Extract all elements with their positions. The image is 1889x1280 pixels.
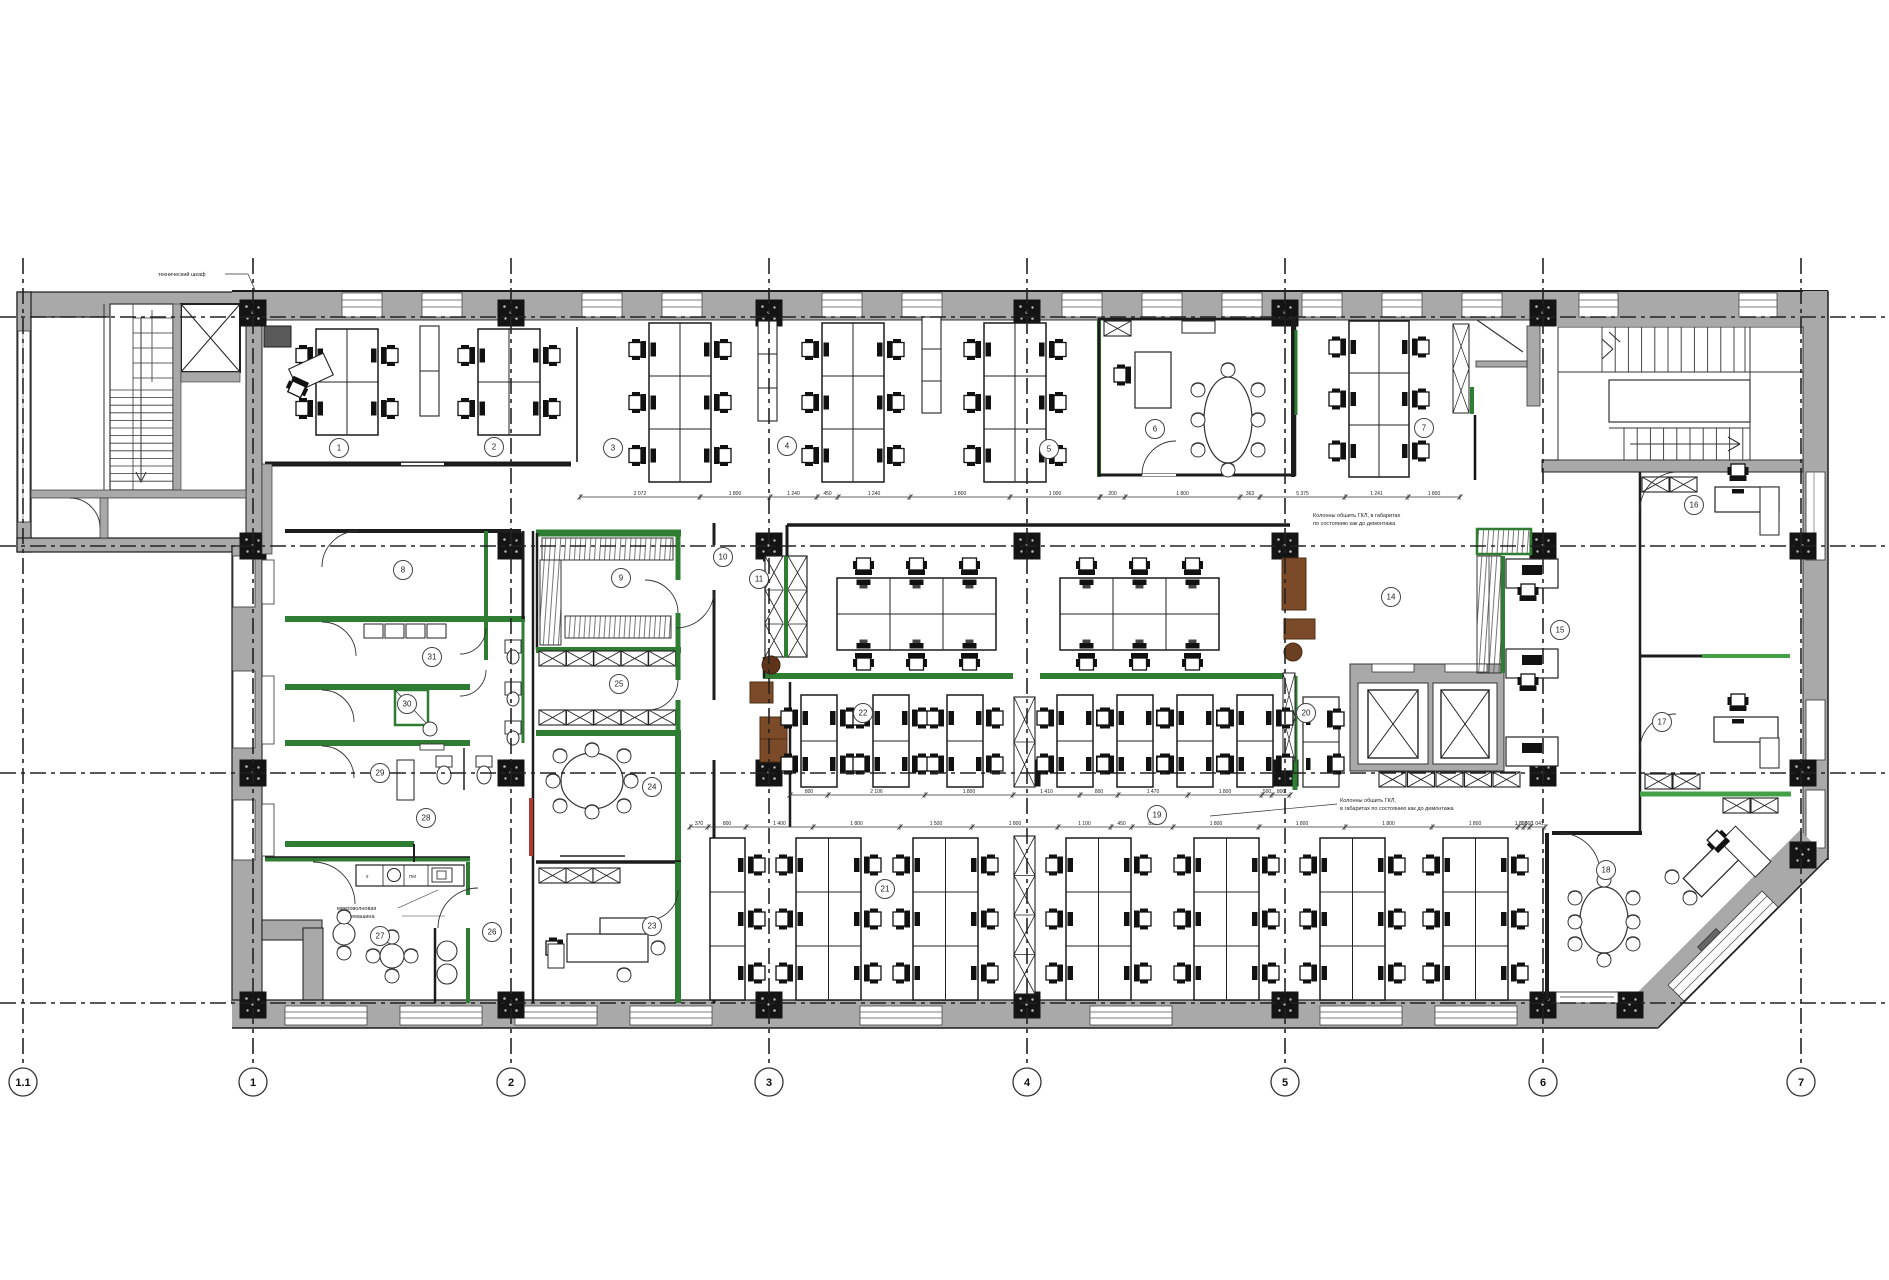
- svg-text:7: 7: [1798, 1077, 1804, 1089]
- svg-text:28: 28: [422, 814, 431, 823]
- svg-text:1 800: 1 800: [729, 491, 742, 497]
- svg-text:7: 7: [1422, 424, 1427, 433]
- svg-text:1 800: 1 800: [1382, 821, 1395, 827]
- svg-text:1 800: 1 800: [954, 491, 967, 497]
- svg-text:1 800: 1 800: [963, 789, 976, 795]
- svg-text:5: 5: [1282, 1077, 1288, 1089]
- svg-text:26: 26: [488, 928, 497, 937]
- svg-text:1 240: 1 240: [868, 491, 881, 497]
- svg-text:800: 800: [723, 821, 732, 827]
- svg-text:18: 18: [1602, 866, 1611, 875]
- svg-text:5: 5: [1047, 445, 1052, 454]
- svg-text:1 000: 1 000: [1049, 491, 1062, 497]
- svg-text:2: 2: [492, 443, 497, 452]
- svg-text:22: 22: [859, 709, 868, 718]
- svg-text:200: 200: [1108, 491, 1117, 497]
- svg-text:ПМ: ПМ: [409, 874, 416, 879]
- svg-text:1 800: 1 800: [1210, 821, 1223, 827]
- svg-text:25: 25: [615, 680, 624, 689]
- svg-text:1 041: 1 041: [1531, 821, 1544, 827]
- svg-text:800: 800: [805, 789, 814, 795]
- svg-text:20: 20: [1302, 709, 1311, 718]
- svg-text:по состоянию как до демонтажа: по состоянию как до демонтажа: [1313, 521, 1396, 527]
- svg-text:1 470: 1 470: [1147, 789, 1160, 795]
- svg-text:11: 11: [755, 575, 764, 584]
- svg-text:17: 17: [1658, 718, 1667, 727]
- svg-text:1 400: 1 400: [773, 821, 786, 827]
- svg-text:21: 21: [881, 885, 890, 894]
- svg-text:27: 27: [376, 932, 385, 941]
- svg-text:29: 29: [376, 769, 385, 778]
- svg-text:30: 30: [403, 700, 412, 709]
- svg-text:1: 1: [250, 1077, 256, 1089]
- svg-text:10: 10: [719, 553, 728, 562]
- svg-text:2: 2: [508, 1077, 514, 1089]
- svg-text:4: 4: [785, 442, 790, 451]
- svg-text:8: 8: [401, 566, 406, 575]
- svg-text:450: 450: [1117, 821, 1126, 827]
- svg-text:в габаритах по состоянию как д: в габаритах по состоянию как до демонтаж…: [1340, 806, 1455, 812]
- svg-text:2 106: 2 106: [870, 789, 883, 795]
- svg-text:1 800: 1 800: [1009, 821, 1022, 827]
- svg-text:1 100: 1 100: [1078, 821, 1091, 827]
- svg-text:500: 500: [1263, 789, 1272, 795]
- svg-text:15: 15: [1556, 626, 1565, 635]
- svg-text:19: 19: [1153, 811, 1162, 820]
- svg-text:Колонны обшить ГКЛ,: Колонны обшить ГКЛ,: [1340, 798, 1396, 804]
- svg-text:1 241: 1 241: [1370, 491, 1383, 497]
- svg-text:363: 363: [1246, 491, 1255, 497]
- svg-text:23: 23: [648, 922, 657, 931]
- svg-text:1 800: 1 800: [1219, 789, 1232, 795]
- svg-text:1 800: 1 800: [1176, 491, 1189, 497]
- svg-text:1 800: 1 800: [850, 821, 863, 827]
- svg-text:4: 4: [1024, 1077, 1031, 1089]
- svg-text:6: 6: [1540, 1077, 1546, 1089]
- svg-text:800: 800: [1277, 789, 1286, 795]
- svg-text:1 240: 1 240: [787, 491, 800, 497]
- svg-text:1.1: 1.1: [15, 1077, 30, 1089]
- svg-text:технический шкаф: технический шкаф: [158, 271, 206, 278]
- svg-text:9: 9: [619, 574, 624, 583]
- svg-text:16: 16: [1690, 501, 1699, 510]
- svg-text:1 800: 1 800: [1469, 821, 1482, 827]
- svg-text:6: 6: [1153, 425, 1158, 434]
- svg-text:5 375: 5 375: [1296, 491, 1309, 497]
- svg-text:1: 1: [337, 444, 342, 453]
- svg-text:24: 24: [648, 783, 657, 792]
- svg-text:1 800: 1 800: [1428, 491, 1441, 497]
- svg-text:31: 31: [428, 653, 437, 662]
- svg-text:1 410: 1 410: [1040, 789, 1053, 795]
- svg-text:Колонны обшить ГКЛ, в габарит: Колонны обшить ГКЛ, в габаритах: [1313, 513, 1401, 519]
- svg-text:2 072: 2 072: [634, 491, 647, 497]
- svg-text:3: 3: [611, 444, 616, 453]
- svg-text:800: 800: [1095, 789, 1104, 795]
- svg-text:3: 3: [766, 1077, 772, 1089]
- svg-text:1 800: 1 800: [1296, 821, 1309, 827]
- svg-text:370: 370: [695, 821, 704, 827]
- svg-text:14: 14: [1387, 593, 1396, 602]
- svg-text:1 500: 1 500: [930, 821, 943, 827]
- svg-text:450: 450: [823, 491, 832, 497]
